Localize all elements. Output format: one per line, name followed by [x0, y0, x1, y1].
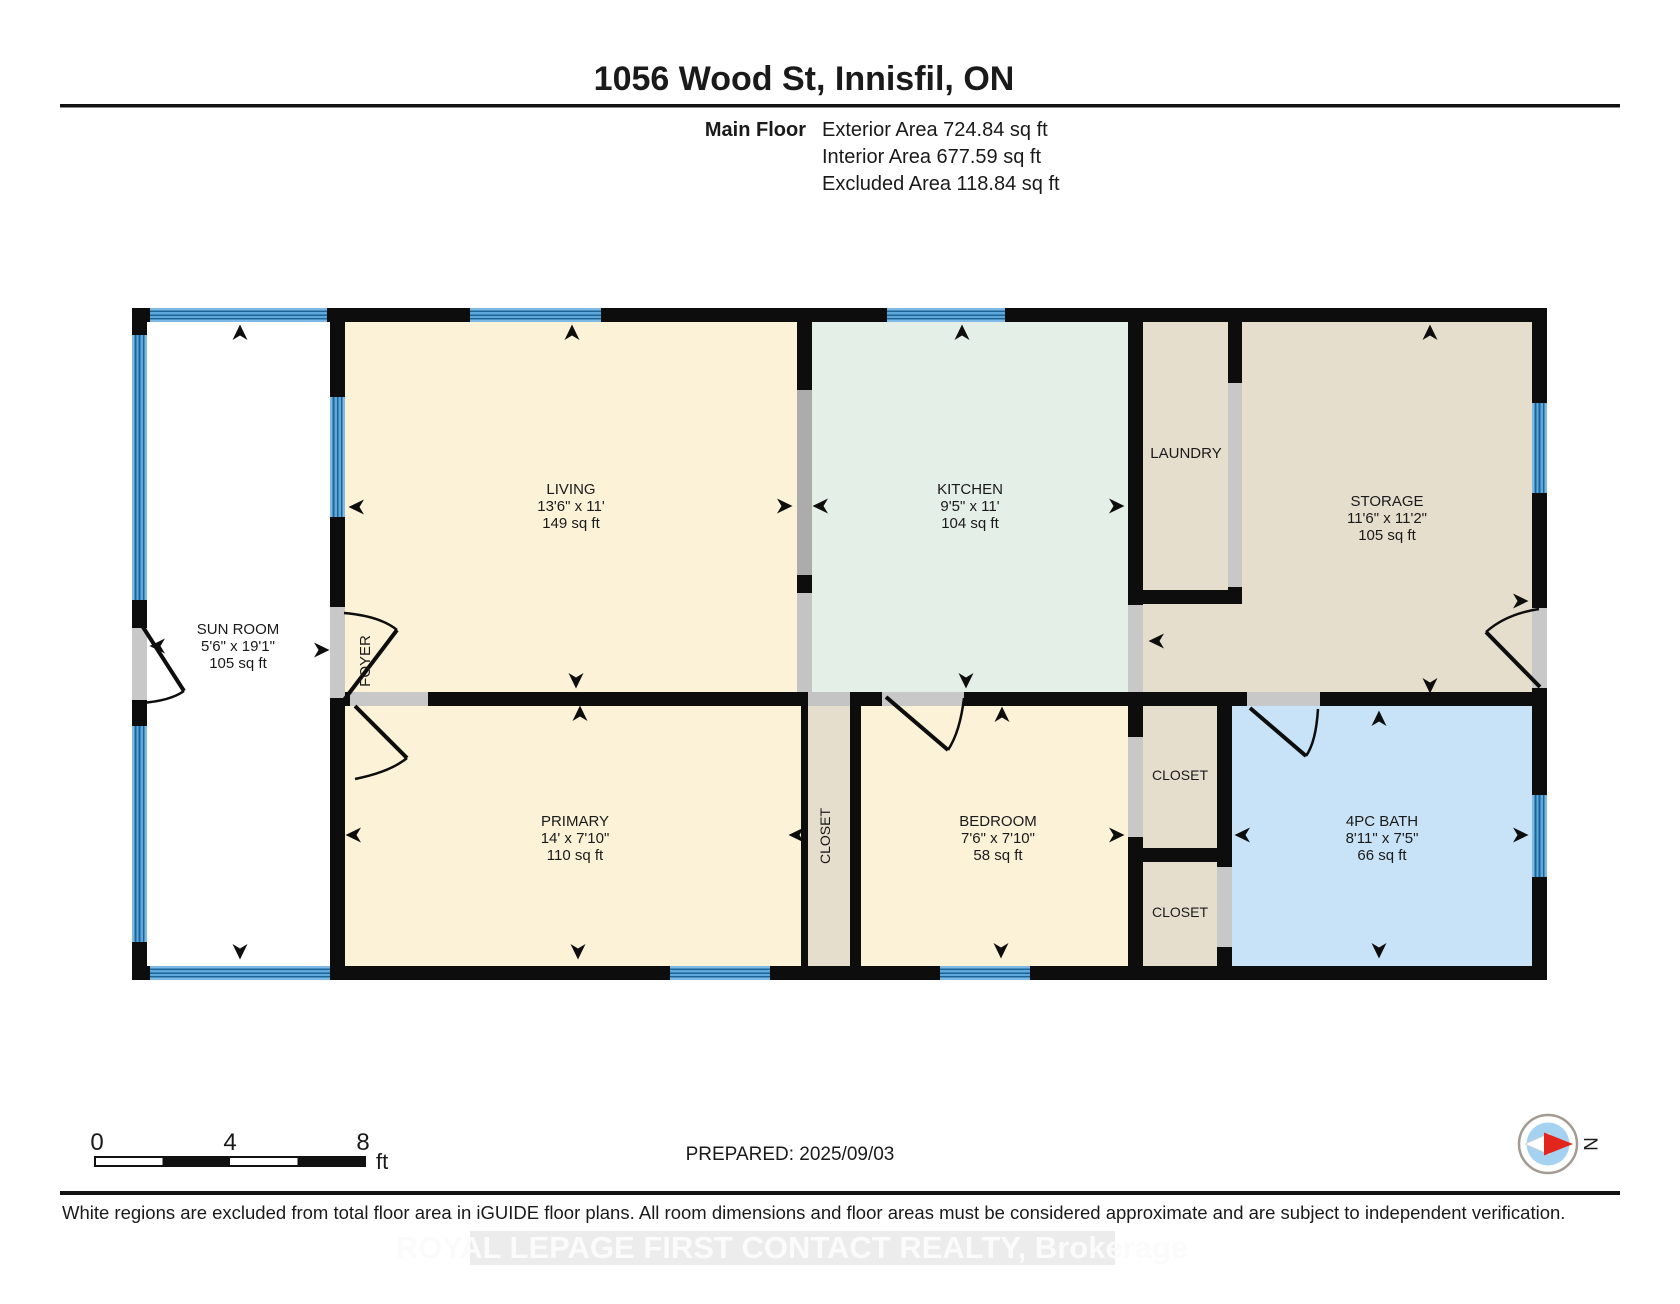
- floor-plan-canvas: 1056 Wood St, Innisfil, ON Main Floor Ex…: [0, 0, 1680, 1299]
- window-primary-bottom: [670, 966, 770, 980]
- window-bath-right: [1532, 795, 1547, 877]
- kitchen-label: KITCHEN: [937, 481, 1003, 498]
- opening-closet-middle-top: [808, 692, 850, 706]
- kitchen-dims: 9'5" x 11': [940, 498, 999, 515]
- opening-living-kitchen-upper: [797, 390, 812, 575]
- opening-kitchen-hall: [1128, 605, 1143, 692]
- opening-storage-door: [1532, 608, 1547, 688]
- footer-divider: [60, 1191, 1620, 1195]
- bedroom-area: 58 sq ft: [973, 847, 1023, 864]
- window-living-top: [470, 308, 601, 322]
- prepared-date: PREPARED: 2025/09/03: [686, 1144, 895, 1165]
- scale-tick-0: 0: [90, 1129, 103, 1156]
- footer: White regions are excluded from total fl…: [60, 1191, 1620, 1265]
- wall-laundry-bottom: [1143, 590, 1242, 604]
- bedroom-dims: 7'6" x 7'10": [961, 830, 1035, 847]
- scale-tick-8: 8: [356, 1129, 369, 1156]
- scale-tick-4: 4: [223, 1129, 236, 1156]
- bath-dims: 8'11" x 7'5": [1346, 830, 1419, 847]
- closet-middle-label: CLOSET: [817, 808, 833, 864]
- bath-label: 4PC BATH: [1346, 813, 1418, 830]
- opening-primary-door: [350, 692, 428, 706]
- wall-closet-left: [801, 706, 808, 966]
- scale-bar-seg-1: [163, 1157, 231, 1166]
- compass: N: [1519, 1115, 1600, 1173]
- opening-living-kitchen-lower: [797, 593, 812, 692]
- footer-disclaimer: White regions are excluded from total fl…: [62, 1202, 1565, 1223]
- storage-area: 105 sq ft: [1358, 527, 1416, 544]
- window-sunroom-left-upper: [132, 335, 147, 600]
- primary-dims: 14' x 7'10": [541, 830, 610, 847]
- foyer-label: FOYER: [357, 635, 374, 687]
- brokerage-watermark: ROYAL LEPAGE FIRST CONTACT REALTY, Broke…: [396, 1230, 1188, 1265]
- living-label: LIVING: [546, 481, 595, 498]
- window-bedroom-bottom: [940, 966, 1030, 980]
- interior-area-stat: Interior Area 677.59 sq ft: [822, 146, 1041, 168]
- storage-label: STORAGE: [1350, 493, 1423, 510]
- window-sunroom-left-lower: [132, 726, 147, 942]
- primary-label: PRIMARY: [541, 813, 609, 830]
- primary-area: 110 sq ft: [547, 847, 604, 864]
- floor-plan-page: 1056 Wood St, Innisfil, ON Main Floor Ex…: [0, 0, 1680, 1299]
- bath-area: 66 sq ft: [1357, 847, 1407, 864]
- kitchen-area: 104 sq ft: [941, 515, 999, 532]
- header: 1056 Wood St, Innisfil, ON Main Floor Ex…: [60, 60, 1620, 195]
- wall-exterior-top: [132, 308, 1547, 322]
- opening-foyer-door: [330, 607, 345, 698]
- laundry-label: LAUNDRY: [1150, 445, 1221, 462]
- wall-closet-right: [850, 706, 861, 966]
- wall-exterior-bottom: [132, 966, 1547, 980]
- storage-dims: 11'6" x 11'2": [1347, 510, 1427, 527]
- scale-bar: 0 4 8 ft: [90, 1129, 388, 1174]
- living-dims: 13'6" x 11': [537, 498, 605, 515]
- window-sunroom-top: [150, 308, 327, 322]
- window-kitchen-top: [887, 308, 1005, 322]
- scale-bar-seg-2: [298, 1157, 366, 1166]
- window-sunroom-bottom: [150, 966, 330, 980]
- living-area: 149 sq ft: [542, 515, 600, 532]
- window-storage-right: [1532, 403, 1547, 493]
- opening-laundry-door: [1228, 383, 1242, 587]
- window-sunroom-living: [330, 397, 345, 517]
- room-fills: [147, 322, 1532, 966]
- opening-closet-lower: [1217, 867, 1232, 947]
- floor-label: Main Floor: [705, 119, 806, 141]
- compass-north-label: N: [1579, 1137, 1600, 1151]
- opening-bath-door: [1247, 692, 1320, 706]
- room-storage-hall: [1143, 604, 1242, 706]
- exterior-area-stat: Exterior Area 724.84 sq ft: [822, 119, 1048, 141]
- bedroom-label: BEDROOM: [959, 813, 1037, 830]
- opening-sunroom-left-door: [132, 628, 147, 700]
- opening-closet-upper: [1128, 737, 1143, 837]
- sun-room-area: 105 sq ft: [209, 655, 267, 672]
- excluded-area-stat: Excluded Area 118.84 sq ft: [822, 173, 1060, 195]
- scale-unit: ft: [376, 1149, 388, 1174]
- page-title: 1056 Wood St, Innisfil, ON: [594, 60, 1015, 98]
- sun-room-dims: 5'6" x 19'1": [201, 638, 275, 655]
- closet-upper-label: CLOSET: [1152, 767, 1208, 783]
- header-divider: [60, 104, 1620, 108]
- closet-lower-label: CLOSET: [1152, 904, 1208, 920]
- sun-room-label: SUN ROOM: [197, 621, 280, 638]
